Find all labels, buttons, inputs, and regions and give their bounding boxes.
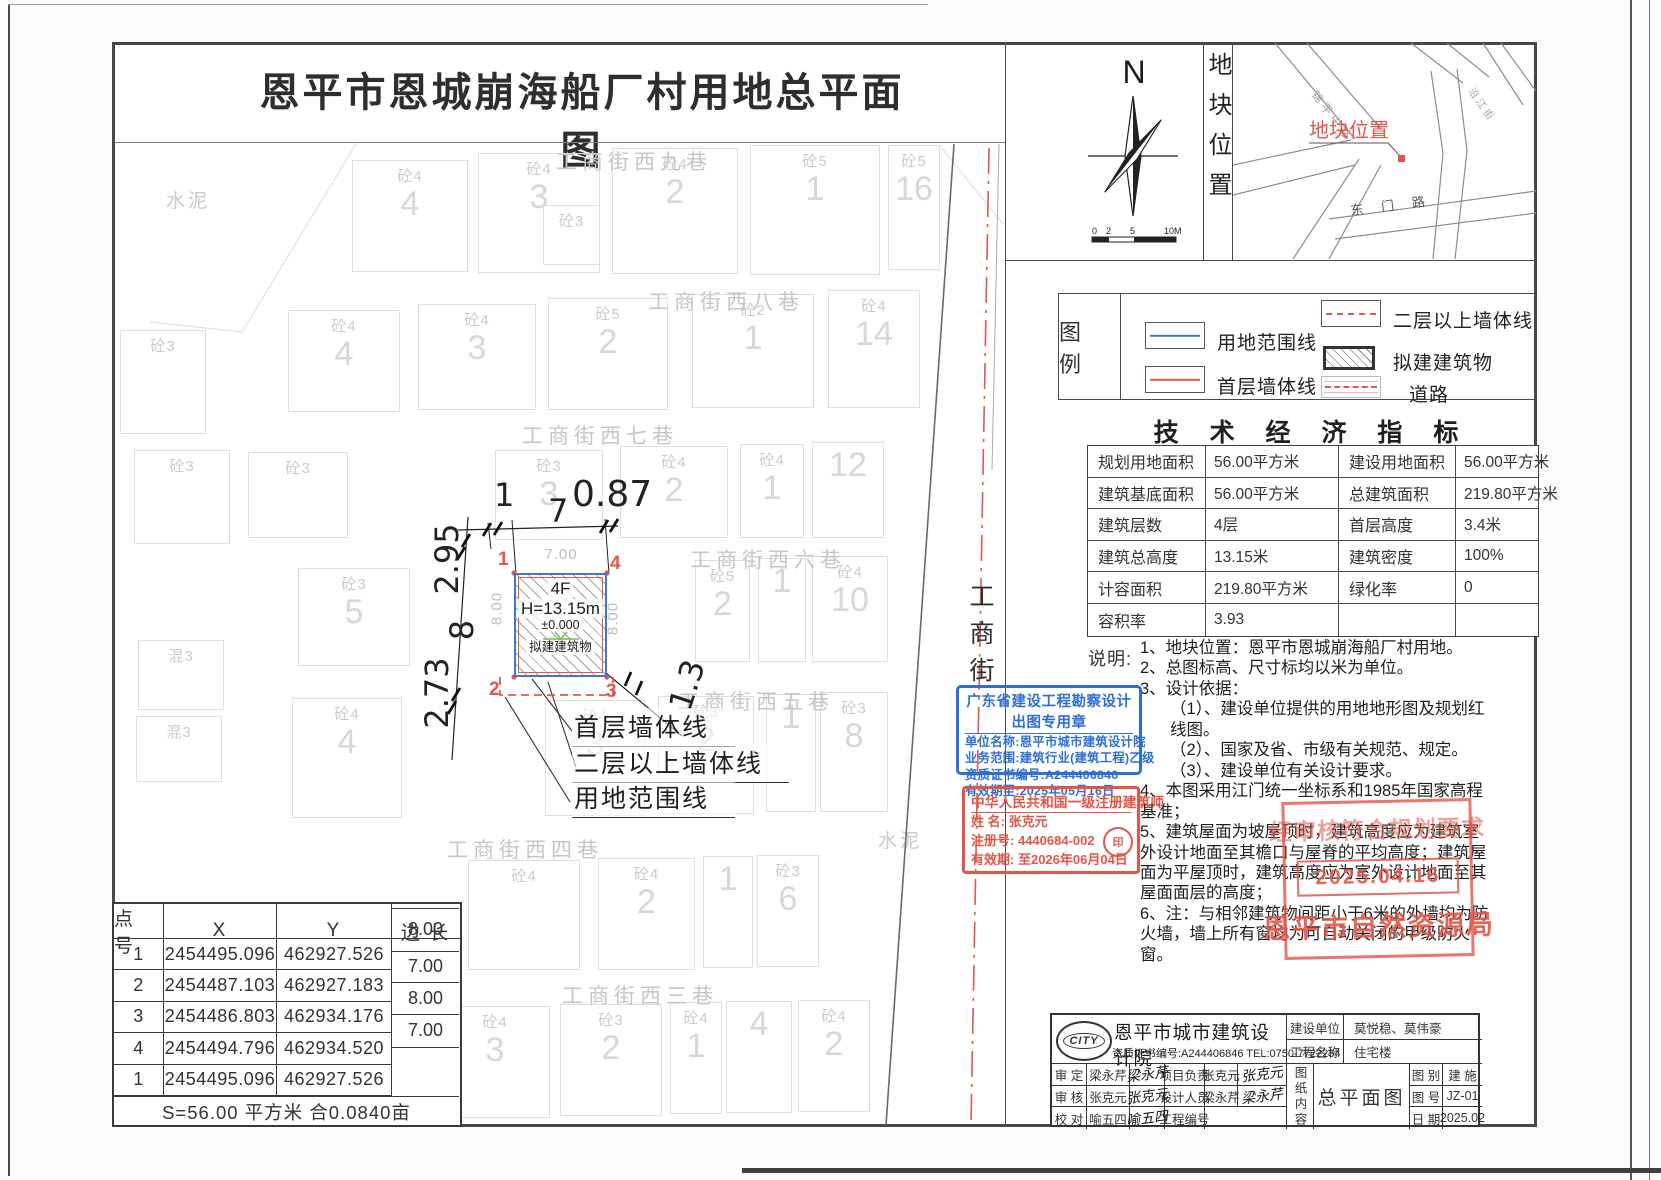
client-name: 莫悦稳、莫伟豪 (1344, 1015, 1482, 1040)
north-letter: N (1114, 54, 1154, 91)
indicator-label: 建筑基底面积 (1088, 478, 1206, 510)
corner-point-1: 1 (498, 549, 509, 571)
coord-x: 2454495.096 (164, 939, 277, 970)
corner-point-3: 3 (606, 681, 617, 703)
coord-y: 462934.176 (277, 1002, 392, 1033)
road-label: 沿江街 (1466, 85, 1499, 124)
coordinate-table-body: 12454495.096462927.52622454487.103462927… (114, 939, 392, 1096)
indicator-label: 首层高度 (1339, 509, 1456, 541)
coord-y: 462934.520 (277, 1033, 392, 1064)
dim-left-lower: 2.73 (418, 653, 456, 733)
proposed-building: 4F H=13.15m ±0.000 拟建建筑物 (514, 573, 607, 677)
legend-swatch-upper-wall (1321, 300, 1381, 327)
point-number: 4 (114, 1033, 164, 1064)
indicator-label: 建筑密度 (1339, 541, 1456, 573)
dim-top-right: 0.87 (572, 474, 652, 515)
title-block-company-cell: CITY 恩平市城市建筑设计院 资质证书编号:A244406846 TEL:07… (1052, 1015, 1287, 1064)
site-location-marker-label: 地块位置 (1309, 119, 1389, 142)
indicator-value: 3.4米 (1456, 509, 1538, 541)
note-line: 2、总图标高、尺寸标均以米为单位。 (1140, 658, 1492, 678)
building-labels: 4F H=13.15m ±0.000 拟建建筑物 (516, 579, 605, 655)
point-number: 3 (114, 1002, 164, 1033)
indicator-value: 100% (1456, 541, 1538, 573)
note-line: （1）、建设单位提供的用地地形图及规划红线图。 (1140, 699, 1492, 740)
indicator-label: 绿化率 (1339, 572, 1456, 604)
role-label: 工程编号 (1165, 1107, 1205, 1129)
role-name: 张克元 (1205, 1064, 1238, 1086)
legend-swatch-first-floor-wall (1145, 366, 1205, 393)
meta-label: 日 期 (1410, 1107, 1443, 1129)
callout-label: 用地范围线 (572, 779, 735, 818)
stamp-title: 广东省建设工程勘察设计出图专用章 (965, 690, 1133, 734)
legend-heading: 图 例 (1059, 294, 1121, 399)
compass-row-bottom (1005, 260, 1537, 261)
indicator-value: 56.00平方米 (1206, 446, 1339, 478)
signature-text: 梁永芹 (1240, 1084, 1284, 1109)
drawing-content: 总平面图 (1314, 1064, 1410, 1129)
meta-value: 建 施 (1443, 1064, 1482, 1086)
building-height: H=13.15m (518, 599, 603, 619)
notes-heading: 说明: (1088, 645, 1132, 671)
indicator-label (1339, 604, 1456, 636)
callout-boundary: 用地范围线 (572, 779, 735, 818)
indicator-value: 219.80平方米 (1456, 478, 1538, 510)
meta-label: 图 别 (1410, 1064, 1443, 1086)
corner-point-2: 2 (489, 679, 500, 701)
legend-swatch-boundary (1145, 322, 1205, 349)
corner-point-4: 4 (610, 553, 621, 575)
approval-statement: 经审核符合规划要求 (1269, 809, 1486, 848)
indicator-label: 规划用地面积 (1088, 446, 1206, 478)
legend-label: 用地范围线 (1217, 328, 1317, 355)
indicator-value: 13.15米 (1206, 541, 1339, 573)
dim-inner-left: 8.00 (489, 584, 506, 634)
point-number: 2 (114, 970, 164, 1001)
indicator-label: 容积率 (1088, 604, 1206, 636)
edge-length-value: 8.00 (392, 908, 459, 951)
coord-x: 2454487.103 (164, 970, 277, 1001)
indicator-value: 219.80平方米 (1206, 572, 1339, 604)
point-number: 1 (114, 939, 164, 970)
edge-length-value: 7.00 (392, 951, 459, 982)
meta-value: 2025.02 (1443, 1107, 1482, 1129)
planning-approval-stamp: 经审核符合规划要求 2025.04.16 恩平市自然资源局 (1281, 798, 1474, 960)
role-label: 设计人员 (1165, 1086, 1205, 1108)
legend-label: 拟建建筑物 (1393, 348, 1493, 375)
indicators-heading: 技 术 经 济 指 标 (1087, 413, 1537, 449)
edge-separator (392, 1047, 459, 1048)
signature: 梁永芹 (1238, 1086, 1287, 1108)
architect-seal-icon: 印 (1103, 827, 1133, 857)
title-block: CITY 恩平市城市建筑设计院 资质证书编号:A244406846 TEL:07… (1050, 1013, 1480, 1127)
edge-length-value: 7.00 (392, 1014, 459, 1047)
edge-length-value: 8.00 (392, 982, 459, 1014)
stamp-field-label: 姓 名: (971, 814, 1005, 829)
indicator-label: 建设用地面积 (1339, 446, 1456, 478)
coord-y: 462927.183 (277, 970, 392, 1001)
note-line: 3、设计依据： (1140, 679, 1492, 699)
legend-label: 首层墙体线 (1217, 372, 1317, 399)
stamp-field-label: 有效期: (971, 852, 1014, 867)
registered-architect-stamp: 中华人民共和国一级注册建筑师 姓 名: 张克元 注册号: 4440684-002… (962, 786, 1140, 874)
scanned-site-plan-sheet: 恩平市恩城崩海船厂村用地总平面图 砼44砼43砼3砼42砼51砼516砼44砼4… (0, 0, 1661, 1180)
role-label: 校 对 (1052, 1107, 1087, 1129)
company-credential: 资质证书编号:A244406846 TEL:0750-7722234 (1112, 1045, 1287, 1061)
coord-y: 462927.526 (277, 1065, 392, 1096)
legend-swatch-proposed-building (1323, 346, 1375, 370)
callout-label: 二层以上墙体线 (572, 744, 789, 783)
client-label: 建设单位 (1287, 1015, 1344, 1040)
indicator-value: 0 (1456, 572, 1538, 604)
project-label: 工程名称 (1287, 1040, 1344, 1064)
role-label: 审 定 (1052, 1064, 1087, 1086)
scale-bar: 0 2 5 10M (1090, 226, 1186, 246)
role-name: 梁永芹 (1205, 1086, 1238, 1108)
coord-y: 462927.526 (277, 939, 392, 970)
dim-top-left: 1 (494, 476, 514, 514)
legend-label: 二层以上墙体线 (1393, 306, 1533, 333)
approval-date: 2025.04.16 (1297, 857, 1459, 896)
location-map: 锦平中路 沿江街 东门路 地块位置 (1233, 43, 1536, 259)
role-name: 梁永芹 (1087, 1064, 1130, 1086)
content-label: 图纸内容 (1287, 1064, 1314, 1129)
signature: 张克元 (1238, 1064, 1287, 1086)
indicators-table: 规划用地面积56.00平方米建设用地面积56.00平方米建筑基底面积56.00平… (1087, 445, 1539, 637)
architect-name: 张克元 (1009, 814, 1048, 829)
note-line: （3）、建设单位有关设计要求。 (1140, 761, 1492, 781)
design-institute-stamp: 广东省建设工程勘察设计出图专用章 单位名称:恩平市城市建筑设计院 业务范围:建筑… (956, 685, 1142, 775)
project-number-cell (1205, 1107, 1287, 1129)
role-label: 项目负责 (1165, 1064, 1205, 1086)
meta-label: 图 号 (1410, 1086, 1443, 1108)
scale-tick-label: 5 (1130, 226, 1135, 236)
location-panel-label: 地块位置 (1203, 52, 1232, 252)
architect-reg-no: 4440684-002 (1018, 833, 1095, 848)
stamp-field-label: 注册号: (971, 833, 1014, 848)
callout-label: 首层墙体线 (572, 708, 735, 747)
area-summary: S=56.00 平方米 合0.0840亩 (114, 1096, 459, 1127)
indicator-label: 总建筑面积 (1339, 478, 1456, 510)
stamp-row: 单位名称:恩平市城市建筑设计院 (965, 734, 1133, 750)
meta-value: JZ-01 (1443, 1086, 1482, 1108)
indicator-value: 4层 (1206, 509, 1339, 541)
indicator-label: 建筑层数 (1088, 509, 1206, 541)
scale-tick-label: 2 (1106, 226, 1111, 236)
indicator-label: 建筑总高度 (1088, 541, 1206, 573)
legend: 图 例 用地范围线 首层墙体线 二层以上墙体线 拟建建筑物 道路 (1058, 293, 1537, 400)
location-panel-label-text: 地块位置 (1200, 52, 1235, 252)
legend-label: 道路 (1409, 380, 1449, 407)
callout-upper-wall: 二层以上墙体线 (572, 744, 789, 783)
coord-x: 2454494.796 (164, 1033, 277, 1064)
legend-swatch-road (1321, 376, 1381, 398)
point-number: 1 (114, 1065, 164, 1096)
building-floors: 4F (548, 579, 574, 599)
panel-divider (1005, 42, 1006, 1127)
indicator-value: 56.00平方米 (1206, 478, 1339, 510)
role-name: 喻五四 (1087, 1107, 1130, 1129)
coordinate-table: 点 号 X Y 边 长 12454495.096462927.526224544… (112, 902, 462, 1127)
scale-tick-label: 0 (1092, 226, 1097, 236)
stamp-row: 资质证书编号:A244406846 (965, 767, 1133, 783)
site-location-marker (1398, 155, 1405, 162)
dim-inner-top: 7.00 (536, 546, 586, 563)
edge-length-column: 8.007.008.007.00 (392, 904, 459, 1096)
role-name: 张克元 (1087, 1086, 1130, 1108)
scale-tick-label: 10M (1164, 226, 1182, 236)
seal-glyph: 印 (1113, 834, 1124, 850)
project-name: 住宅楼 (1344, 1040, 1482, 1064)
logo-text: CITY (1063, 1033, 1104, 1049)
indicator-label: 计容面积 (1088, 572, 1206, 604)
approval-agency: 恩平市自然资源局 (1263, 903, 1496, 947)
note-line: 1、地块位置：恩平市恩城崩海船厂村用地。 (1140, 638, 1492, 658)
stamp-title: 中华人民共和国一级注册建筑师 (971, 791, 1131, 813)
indicator-value: 56.00平方米 (1456, 446, 1538, 478)
coord-x: 2454486.803 (164, 1002, 277, 1033)
note-line: （2）、国家及省、市级有关规范、规定。 (1140, 740, 1492, 760)
dim-left-upper: 2.95 (428, 519, 466, 599)
coord-x: 2454495.096 (164, 1065, 277, 1096)
role-label: 审 核 (1052, 1086, 1087, 1108)
dim-inner-right: 8.00 (605, 594, 622, 644)
callout-first-floor-wall: 首层墙体线 (572, 708, 735, 747)
indicator-value (1456, 604, 1538, 636)
building-name: 拟建建筑物 (526, 640, 595, 654)
indicator-value: 3.93 (1206, 604, 1339, 636)
north-arrow-icon (1078, 92, 1188, 222)
stamp-row: 业务范围:建筑行业(建筑工程)乙级 (965, 750, 1133, 766)
dim-top: 7 (548, 492, 568, 530)
content-label-text: 图纸内容 (1291, 1066, 1310, 1128)
company-logo-icon: CITY (1056, 1021, 1112, 1061)
building-level: ±0.000 (538, 618, 582, 632)
